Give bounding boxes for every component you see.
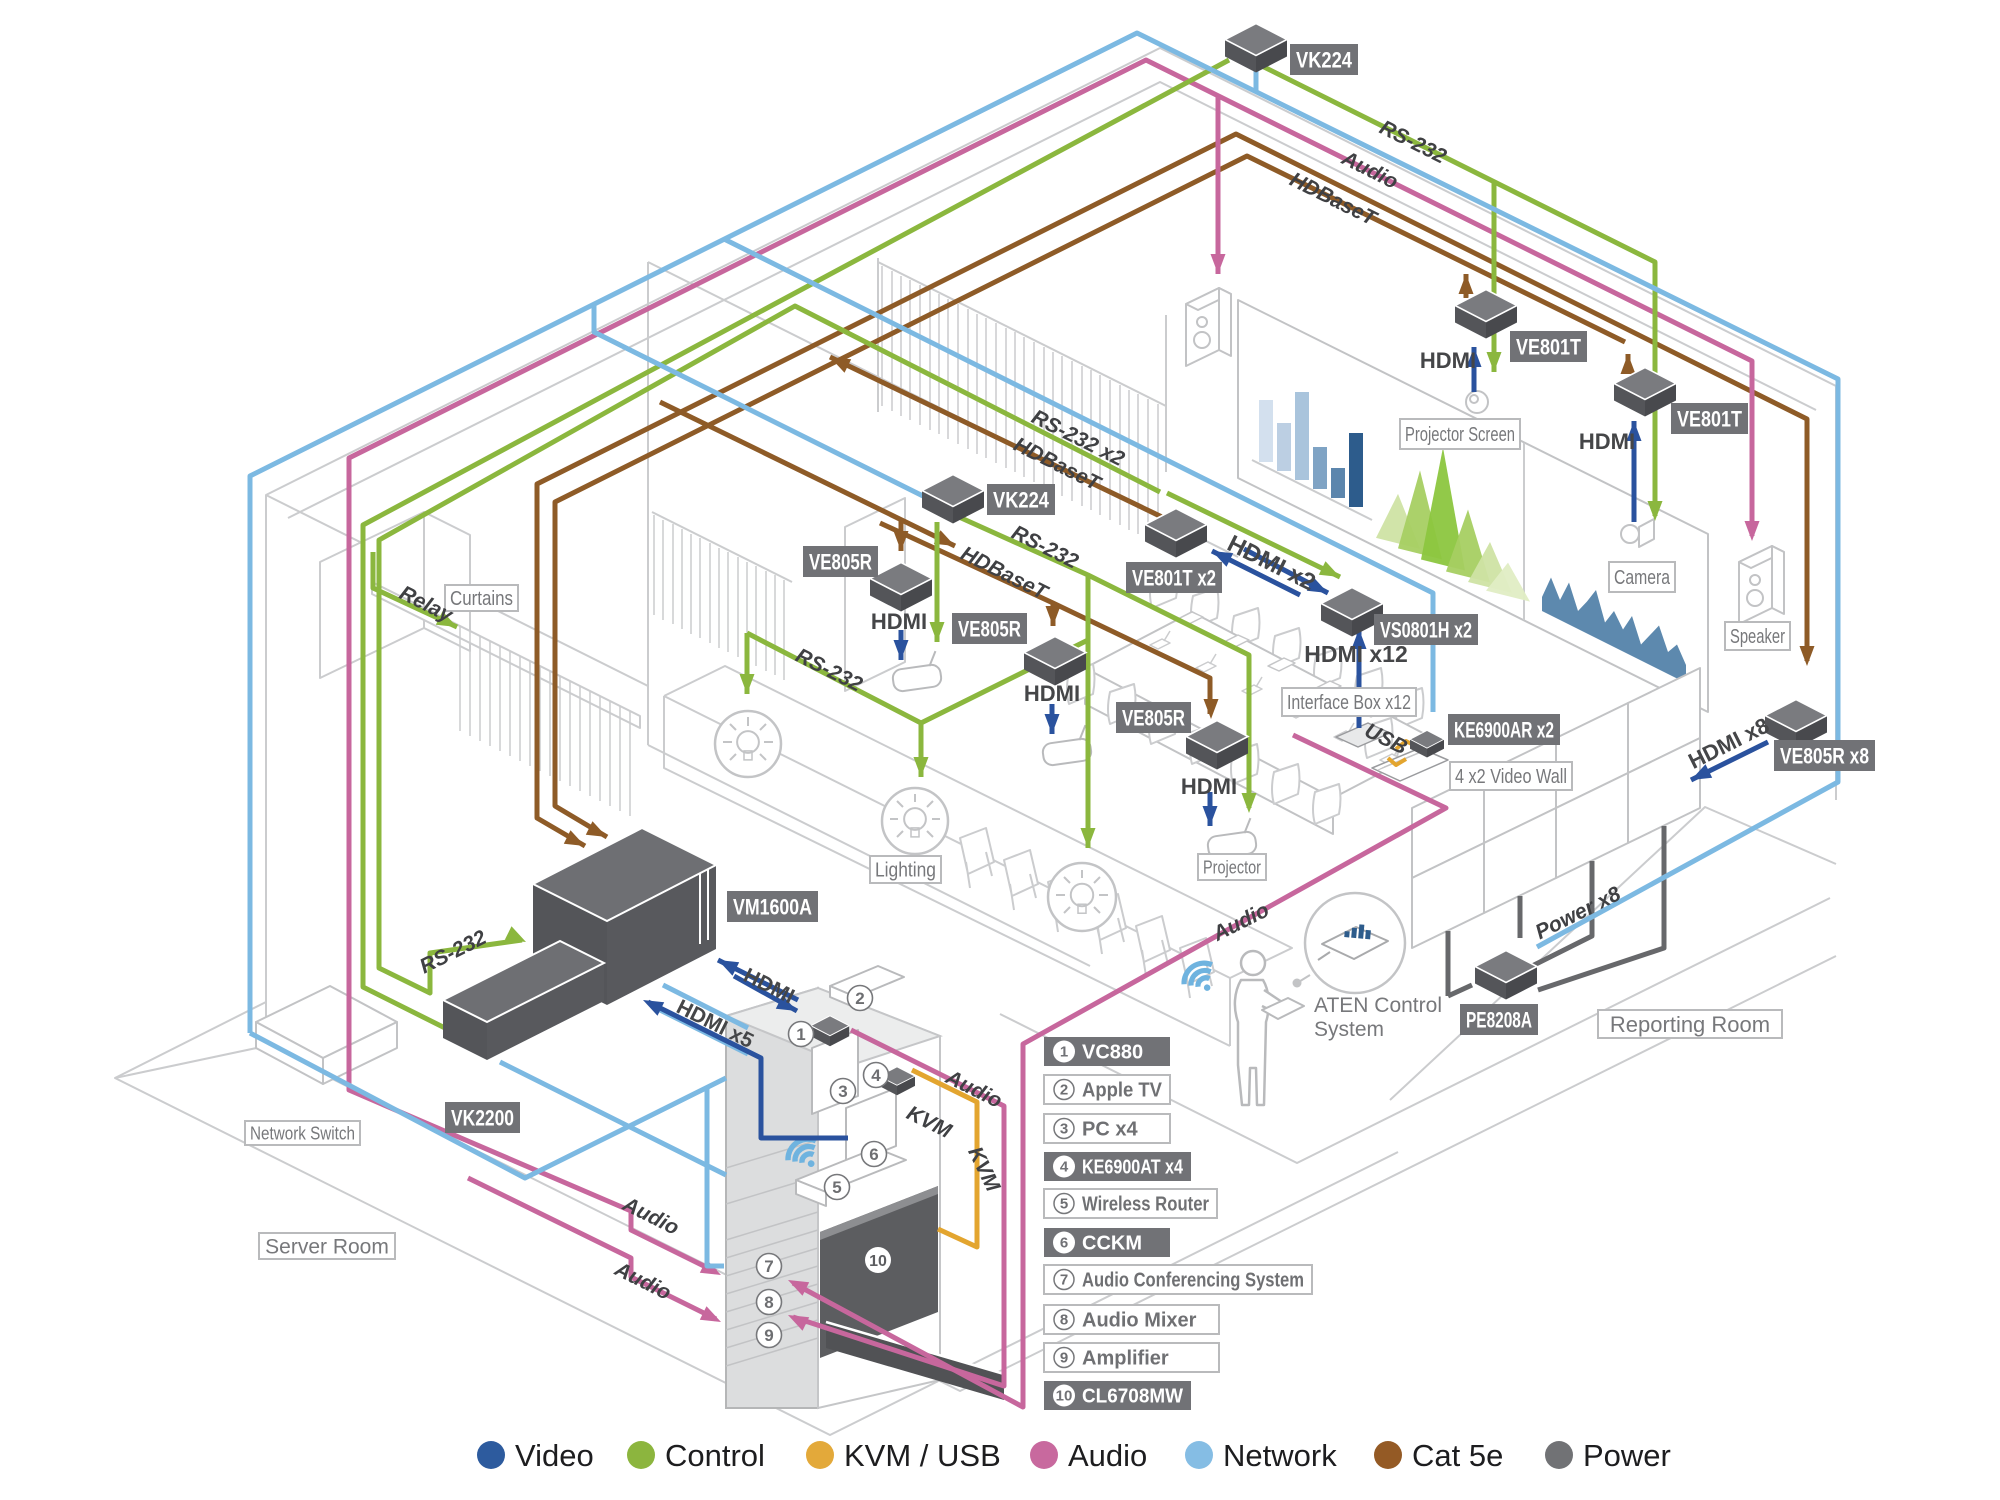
svg-text:HDMI: HDMI: [1024, 681, 1080, 706]
svg-text:VK2200: VK2200: [451, 1105, 514, 1130]
svg-text:PE8208A: PE8208A: [1466, 1007, 1532, 1032]
svg-text:PC x4: PC x4: [1082, 1119, 1138, 1141]
svg-text:5: 5: [1060, 1196, 1068, 1213]
svg-text:HDMI: HDMI: [1181, 774, 1237, 799]
svg-text:HDMI: HDMI: [1420, 348, 1476, 373]
svg-text:3: 3: [1060, 1121, 1068, 1138]
svg-text:Wireless Router: Wireless Router: [1082, 1194, 1209, 1216]
svg-text:2: 2: [855, 989, 864, 1008]
svg-text:HDMI: HDMI: [871, 609, 927, 634]
svg-text:Reporting Room: Reporting Room: [1610, 1012, 1770, 1037]
svg-text:VC880: VC880: [1082, 1042, 1143, 1064]
svg-text:8: 8: [1060, 1312, 1068, 1329]
svg-text:Cat 5e: Cat 5e: [1412, 1438, 1503, 1473]
svg-text:VE805R: VE805R: [809, 549, 872, 574]
svg-text:Network: Network: [1223, 1438, 1337, 1473]
svg-text:VE805R: VE805R: [958, 616, 1021, 641]
svg-text:Speaker: Speaker: [1730, 626, 1785, 648]
svg-text:7: 7: [764, 1257, 773, 1276]
svg-text:HDMI: HDMI: [1579, 429, 1635, 454]
svg-text:5: 5: [832, 1178, 841, 1197]
svg-text:KE6900AR x2: KE6900AR x2: [1454, 717, 1554, 742]
svg-text:9: 9: [1060, 1350, 1068, 1367]
svg-text:3: 3: [838, 1082, 847, 1101]
svg-text:Lighting: Lighting: [875, 860, 936, 882]
svg-text:10: 10: [1056, 1388, 1073, 1405]
svg-text:ATEN Control: ATEN Control: [1314, 994, 1442, 1017]
svg-text:KVM / USB: KVM / USB: [844, 1438, 1001, 1473]
svg-text:4: 4: [871, 1066, 881, 1085]
svg-text:Network Switch: Network Switch: [250, 1123, 355, 1143]
svg-text:Projector: Projector: [1203, 857, 1261, 877]
svg-text:Interface Box x12: Interface Box x12: [1287, 692, 1411, 714]
svg-text:VS0801H x2: VS0801H x2: [1380, 617, 1472, 642]
svg-text:6: 6: [869, 1145, 878, 1164]
svg-text:Apple TV: Apple TV: [1082, 1080, 1163, 1102]
svg-text:CCKM: CCKM: [1082, 1233, 1142, 1255]
svg-text:VE805R: VE805R: [1122, 705, 1185, 730]
svg-text:VE801T: VE801T: [1677, 406, 1742, 431]
svg-text:KE6900AT x4: KE6900AT x4: [1082, 1157, 1184, 1179]
svg-text:Server Room: Server Room: [265, 1236, 389, 1259]
svg-text:4 x2 Video Wall: 4 x2 Video Wall: [1455, 766, 1567, 788]
svg-text:CL6708MW: CL6708MW: [1082, 1386, 1183, 1408]
svg-text:Curtains: Curtains: [450, 588, 513, 610]
svg-text:Audio Mixer: Audio Mixer: [1082, 1310, 1197, 1332]
svg-text:System: System: [1314, 1018, 1384, 1041]
svg-text:VE801T: VE801T: [1516, 334, 1581, 359]
svg-text:10: 10: [869, 1253, 887, 1270]
svg-text:2: 2: [1060, 1082, 1068, 1099]
svg-text:Projector Screen: Projector Screen: [1405, 424, 1515, 446]
svg-text:VM1600A: VM1600A: [733, 894, 812, 919]
svg-text:9: 9: [764, 1326, 773, 1345]
svg-text:VE801T x2: VE801T x2: [1132, 565, 1216, 590]
svg-text:1: 1: [1060, 1044, 1068, 1061]
svg-text:HDMI x12: HDMI x12: [1304, 641, 1408, 667]
svg-text:VE805R x8: VE805R x8: [1780, 743, 1869, 768]
svg-text:Control: Control: [665, 1438, 765, 1473]
svg-text:VK224: VK224: [1296, 47, 1353, 72]
svg-text:4: 4: [1060, 1159, 1069, 1176]
svg-text:1: 1: [796, 1025, 805, 1044]
svg-text:VK224: VK224: [993, 487, 1050, 512]
svg-text:Audio: Audio: [1068, 1438, 1147, 1473]
svg-text:8: 8: [764, 1293, 773, 1312]
svg-text:7: 7: [1060, 1272, 1068, 1289]
svg-text:Video: Video: [515, 1438, 594, 1473]
svg-text:Amplifier: Amplifier: [1082, 1348, 1169, 1370]
svg-text:Power: Power: [1583, 1438, 1671, 1473]
svg-text:Camera: Camera: [1614, 567, 1671, 589]
svg-text:6: 6: [1060, 1235, 1068, 1252]
svg-text:Audio Conferencing System: Audio Conferencing System: [1082, 1270, 1304, 1292]
